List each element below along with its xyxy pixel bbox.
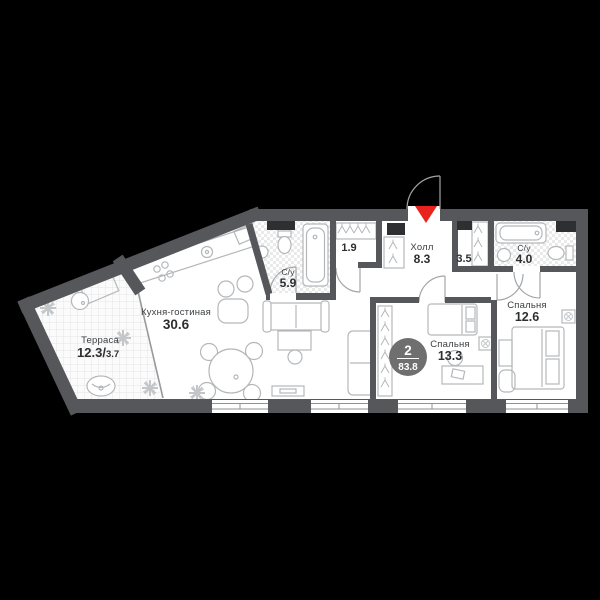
room-area-bathroom-small: 5.9: [280, 276, 297, 290]
room-area-bedroom-second: 13.3: [438, 349, 462, 363]
bed: [512, 327, 564, 389]
entrance-door-arc: [407, 176, 440, 209]
washbasin: [498, 249, 511, 262]
room-area-wardrobe-small: 1.9: [341, 242, 356, 254]
terrace-table: [72, 293, 89, 310]
apartment-badge: 2 83.8: [389, 338, 427, 376]
badge-rooms-count: 2: [404, 343, 412, 358]
bean-bag: [87, 376, 115, 396]
badge-total-area: 83.8: [398, 362, 418, 373]
window: [311, 400, 368, 413]
room-area-hall: 8.3: [414, 252, 431, 266]
room-area-bathroom-master: 4.0: [516, 252, 533, 266]
tv-bench: [272, 386, 304, 396]
toilet: [278, 231, 291, 254]
room-area-wardrobe-large: 3.5: [456, 253, 471, 265]
desk: [442, 366, 483, 384]
window: [212, 400, 268, 413]
room-area-bedroom-master: 12.6: [515, 310, 539, 324]
toilet: [548, 246, 573, 260]
window: [506, 400, 568, 413]
window: [398, 400, 466, 413]
floor-plan: Терраса 12.3/3.7 Кухня-гостиная 30.6 С/у…: [0, 0, 600, 600]
floor-plan-canvas: Терраса 12.3/3.7 Кухня-гостиная 30.6 С/у…: [0, 0, 600, 600]
room-area-kitchen-living: 30.6: [163, 317, 190, 332]
